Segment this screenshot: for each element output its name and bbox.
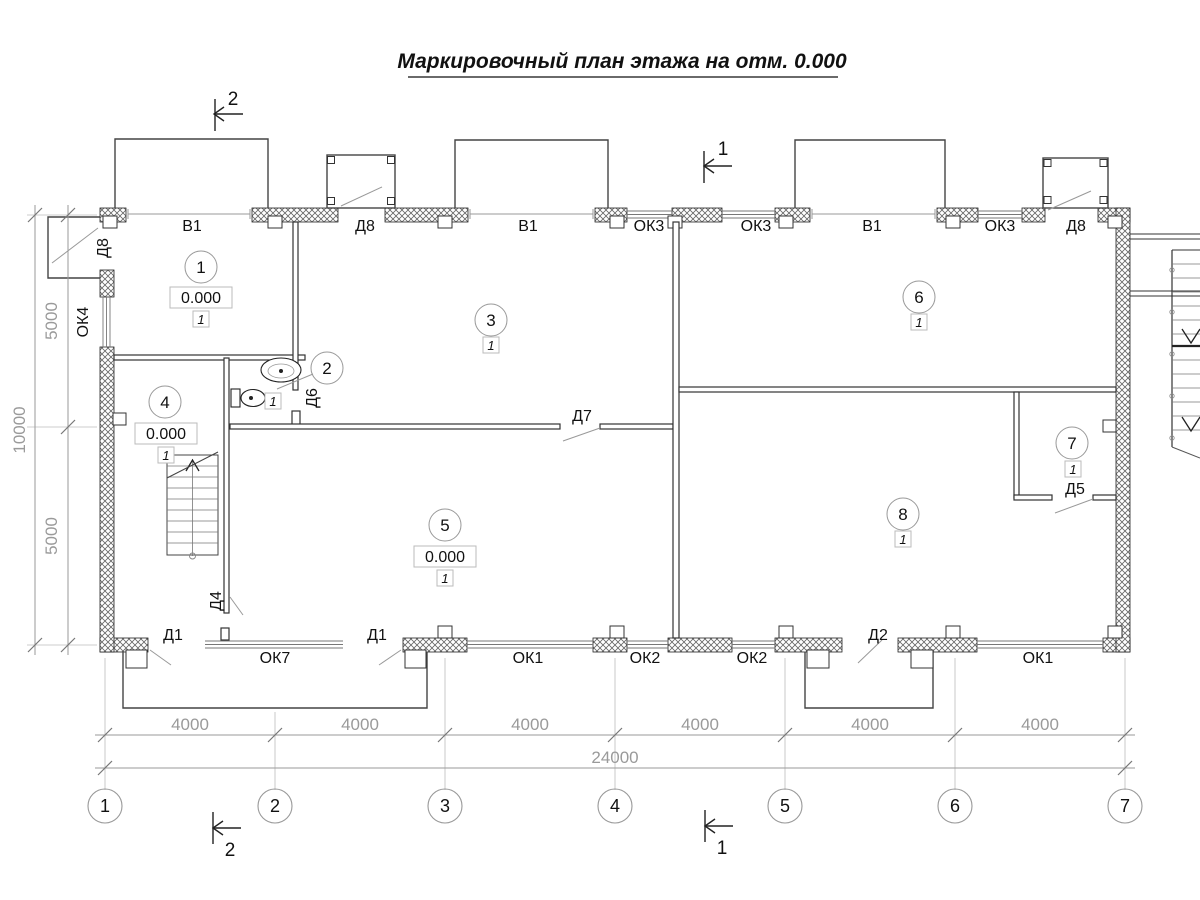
dim-24000: 24000 [591, 748, 638, 767]
label-ok3: ОК3 [634, 218, 665, 235]
svg-text:6: 6 [950, 796, 960, 816]
dim-4000: 4000 [681, 715, 719, 734]
svg-text:1: 1 [487, 338, 494, 353]
stair-down-arrow [1182, 417, 1200, 431]
room-tag-8: 8 1 [887, 498, 919, 547]
svg-text:0.000: 0.000 [425, 549, 465, 566]
label-v1: В1 [182, 218, 202, 235]
label-v1: В1 [518, 218, 538, 235]
svg-text:1: 1 [718, 139, 729, 160]
svg-text:3: 3 [486, 311, 495, 330]
svg-text:1: 1 [441, 571, 448, 586]
section-mark-1-bottom: 1 [705, 810, 733, 859]
section-mark-1-top: 1 [704, 139, 732, 183]
svg-text:5: 5 [440, 516, 449, 535]
section-mark-2-top: 2 [214, 89, 243, 131]
canopy-right [795, 140, 945, 208]
label-d2: Д2 [868, 627, 888, 644]
porch-d8-right [1043, 158, 1108, 208]
label-d7: Д7 [572, 408, 592, 425]
svg-text:8: 8 [898, 505, 907, 524]
leader-d4 [230, 597, 243, 615]
svg-text:1: 1 [197, 312, 204, 327]
svg-text:7: 7 [1067, 434, 1076, 453]
axis-circle-4: 4 [598, 789, 632, 823]
room-tag-1: 1 0.000 1 [170, 251, 232, 327]
toilet-tank-icon [231, 389, 240, 407]
room-tag-4: 4 0.000 1 [135, 386, 197, 463]
svg-text:1: 1 [1069, 462, 1076, 477]
dim-5000: 5000 [42, 517, 61, 555]
porch-d8-mid [327, 155, 395, 208]
label-d8-left: Д8 [95, 238, 112, 258]
canopy-middle [455, 140, 608, 208]
stair-exterior [1130, 234, 1200, 458]
dim-4000: 4000 [1021, 715, 1059, 734]
label-d8: Д8 [355, 218, 375, 235]
svg-text:2: 2 [322, 359, 331, 378]
svg-text:1: 1 [196, 258, 205, 277]
svg-text:1: 1 [899, 532, 906, 547]
svg-text:2: 2 [270, 796, 280, 816]
swing-d8-right [1048, 191, 1091, 210]
dim-10000: 10000 [10, 406, 29, 453]
exterior-walls [100, 208, 1130, 652]
page-title: Маркировочный план этажа на отм. 0.000 [397, 50, 847, 73]
dim-4000: 4000 [851, 715, 889, 734]
label-d6: Д6 [304, 388, 321, 408]
swing-d1-right [379, 650, 401, 665]
axis-circle-6: 6 [938, 789, 972, 823]
axis-circle-7: 7 [1108, 789, 1142, 823]
dim-4000: 4000 [511, 715, 549, 734]
axis-grid: 1 2 3 4 5 6 7 [88, 789, 1142, 823]
window-ok4-symbol [103, 297, 110, 347]
room-tag-7: 7 1 [1056, 427, 1088, 477]
stair-down-arrow [1182, 329, 1200, 343]
label-d1: Д1 [163, 627, 183, 644]
svg-text:1: 1 [162, 448, 169, 463]
label-ok2: ОК2 [737, 650, 768, 667]
svg-text:0.000: 0.000 [181, 290, 221, 307]
label-ok3: ОК3 [741, 218, 772, 235]
svg-text:4: 4 [160, 393, 169, 412]
svg-text:5: 5 [780, 796, 790, 816]
dim-4000: 4000 [171, 715, 209, 734]
room-tags: 1 0.000 1 2 1 3 1 4 0.000 1 [135, 251, 1088, 586]
svg-text:1: 1 [717, 838, 728, 859]
label-d5: Д5 [1065, 481, 1085, 498]
label-d8: Д8 [1066, 218, 1086, 235]
label-ok7: ОК7 [260, 650, 291, 667]
interior-walls [114, 222, 1116, 640]
svg-text:4: 4 [610, 796, 620, 816]
label-ok4: ОК4 [75, 307, 92, 338]
label-ok2: ОК2 [630, 650, 661, 667]
svg-text:1: 1 [100, 796, 110, 816]
porch-d8-left [48, 217, 100, 278]
svg-text:2: 2 [225, 840, 236, 861]
leader-d5 [1055, 499, 1093, 513]
room-tag-3: 3 1 [475, 304, 507, 353]
svg-text:1: 1 [915, 315, 922, 330]
label-ok3: ОК3 [985, 218, 1016, 235]
axis-circle-1: 1 [88, 789, 122, 823]
svg-text:1: 1 [269, 394, 276, 409]
leader-d7 [563, 428, 600, 441]
axis-circle-2: 2 [258, 789, 292, 823]
label-d1: Д1 [367, 627, 387, 644]
left-dimensions: 5000 5000 10000 [10, 205, 97, 655]
swing-d1-left [150, 650, 171, 665]
dim-4000: 4000 [341, 715, 379, 734]
swing-d8-mid [341, 187, 382, 206]
floor-plan-drawing: Маркировочный план этажа на отм. 0.000 [0, 0, 1200, 900]
label-d4: Д4 [208, 591, 225, 611]
floor-plan-page: Маркировочный план этажа на отм. 0.000 [0, 0, 1200, 900]
section-marks: 2 1 2 1 [213, 89, 733, 861]
canopy-left [115, 139, 268, 208]
axis-circle-5: 5 [768, 789, 802, 823]
room-tag-5: 5 0.000 1 [414, 509, 476, 586]
axis-circle-3: 3 [428, 789, 462, 823]
room-tag-6: 6 1 [903, 281, 935, 330]
door-post-d4 [221, 628, 229, 640]
dim-5000: 5000 [42, 302, 61, 340]
bottom-dimensions: 4000 4000 4000 4000 4000 4000 24000 [95, 658, 1135, 790]
label-ok1: ОК1 [513, 650, 544, 667]
svg-text:6: 6 [914, 288, 923, 307]
svg-text:7: 7 [1120, 796, 1130, 816]
svg-text:2: 2 [228, 89, 239, 110]
label-v1: В1 [862, 218, 882, 235]
svg-text:0.000: 0.000 [146, 426, 186, 443]
svg-text:3: 3 [440, 796, 450, 816]
section-mark-2-bottom: 2 [213, 812, 241, 861]
swing-d8-left [52, 228, 98, 263]
label-ok1: ОК1 [1023, 650, 1054, 667]
stair-interior [167, 452, 218, 559]
